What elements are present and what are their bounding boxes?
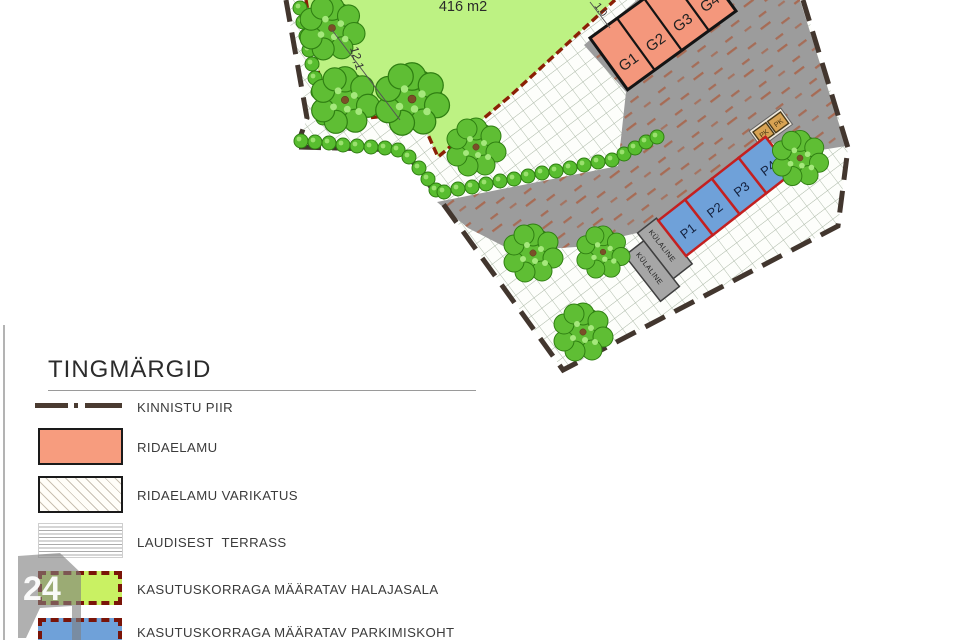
legend-label-kinnistu-piir: KINNISTU PIIR (137, 400, 233, 415)
shrub-icon (650, 130, 664, 144)
shrub-icon (308, 135, 322, 149)
watermark-number: 24 (23, 570, 61, 608)
lawn-area-label: 416 m2 (439, 0, 487, 15)
shrub-icon (402, 150, 416, 164)
shrub-icon (465, 180, 479, 194)
shrub-icon (364, 140, 378, 154)
legend-underline (48, 390, 476, 391)
page-number-watermark: 24 (10, 548, 88, 640)
legend-swatch-varikatus (38, 476, 123, 513)
shrub-icon (479, 177, 493, 191)
shrub-icon (294, 134, 308, 148)
shrub-icon (437, 185, 451, 199)
shrub-icon (563, 161, 577, 175)
shrub-icon (451, 182, 465, 196)
shrub-icon (378, 141, 392, 155)
legend-label-ridaelamu: RIDAELAMU (137, 440, 218, 455)
legend-label-varikatus: RIDAELAMU VARIKATUS (137, 488, 298, 503)
shrub-icon (535, 166, 549, 180)
legend-label-parkimiskoht: KASUTUSKORRAGA MÄÄRATAV PARKIMISKOHT (137, 625, 455, 640)
shrub-icon (336, 138, 350, 152)
shrub-icon (493, 174, 507, 188)
site-plan-page: G1 G2 G3 G4 PK PK KÜLALINE KÜLALINE P1 P… (0, 0, 960, 640)
shrub-icon (591, 155, 605, 169)
legend-label-halajasala: KASUTUSKORRAGA MÄÄRATAV HALAJASALA (137, 582, 439, 597)
shrub-icon (350, 139, 364, 153)
shrub-icon (322, 136, 336, 150)
legend-label-terrass: LAUDISEST TERRASS (137, 535, 287, 550)
shrub-icon (507, 172, 521, 186)
legend-swatch-ridaelamu (38, 428, 123, 465)
legend-swatch-kinnistu-piir (35, 403, 127, 409)
shrub-icon (305, 57, 319, 71)
shrub-icon (549, 164, 563, 178)
shrub-icon (577, 158, 591, 172)
shrub-icon (521, 169, 535, 183)
legend-title: TINGMÄRGID (48, 356, 211, 384)
